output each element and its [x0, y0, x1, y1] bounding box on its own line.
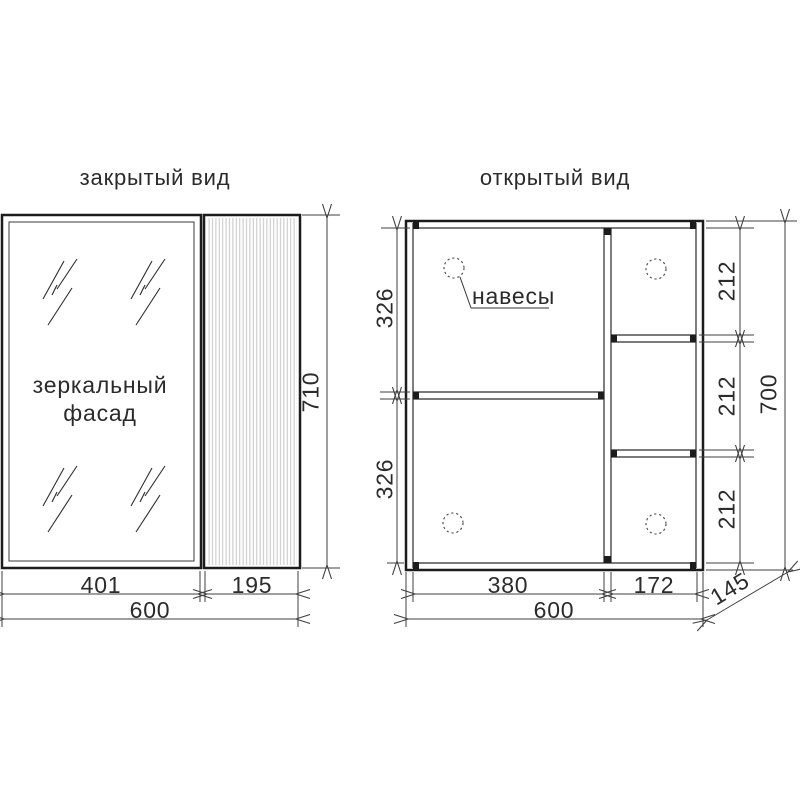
dim-label-main-width-380: 380: [468, 572, 548, 599]
dim-label-height-710: 710: [298, 372, 325, 413]
hinges-label: навесы: [472, 283, 548, 310]
dim-label-total-width-600-open: 600: [514, 597, 594, 624]
dim-label-total-height-700: 700: [756, 374, 783, 415]
dim-label-right-mid-212: 212: [714, 376, 741, 417]
dim-label-right-bottom-212: 212: [714, 489, 741, 530]
side-panel: [204, 215, 300, 568]
dim-label-right-top-212: 212: [714, 261, 741, 302]
dim-label-lower-326: 326: [372, 459, 399, 500]
dim-label-right-col-width-172: 172: [614, 572, 694, 599]
dim-label-upper-326: 326: [372, 288, 399, 329]
mirror-facade-label-line1: зеркальный: [20, 371, 180, 399]
technical-drawing: закрытый вид зеркальный фасад 710 401 19…: [0, 0, 800, 800]
open-view-title: открытый вид: [475, 165, 635, 191]
mirror-facade-label-line2: фасад: [20, 399, 180, 427]
dim-label-side-width-195: 195: [212, 572, 292, 599]
dim-label-door-width-401: 401: [61, 572, 141, 599]
cabinet-carcass: [406, 221, 703, 570]
mirror-facade-label: зеркальный фасад: [20, 371, 180, 427]
closed-view-title: закрытый вид: [65, 165, 245, 191]
dim-label-total-width-600-closed: 600: [110, 597, 190, 624]
